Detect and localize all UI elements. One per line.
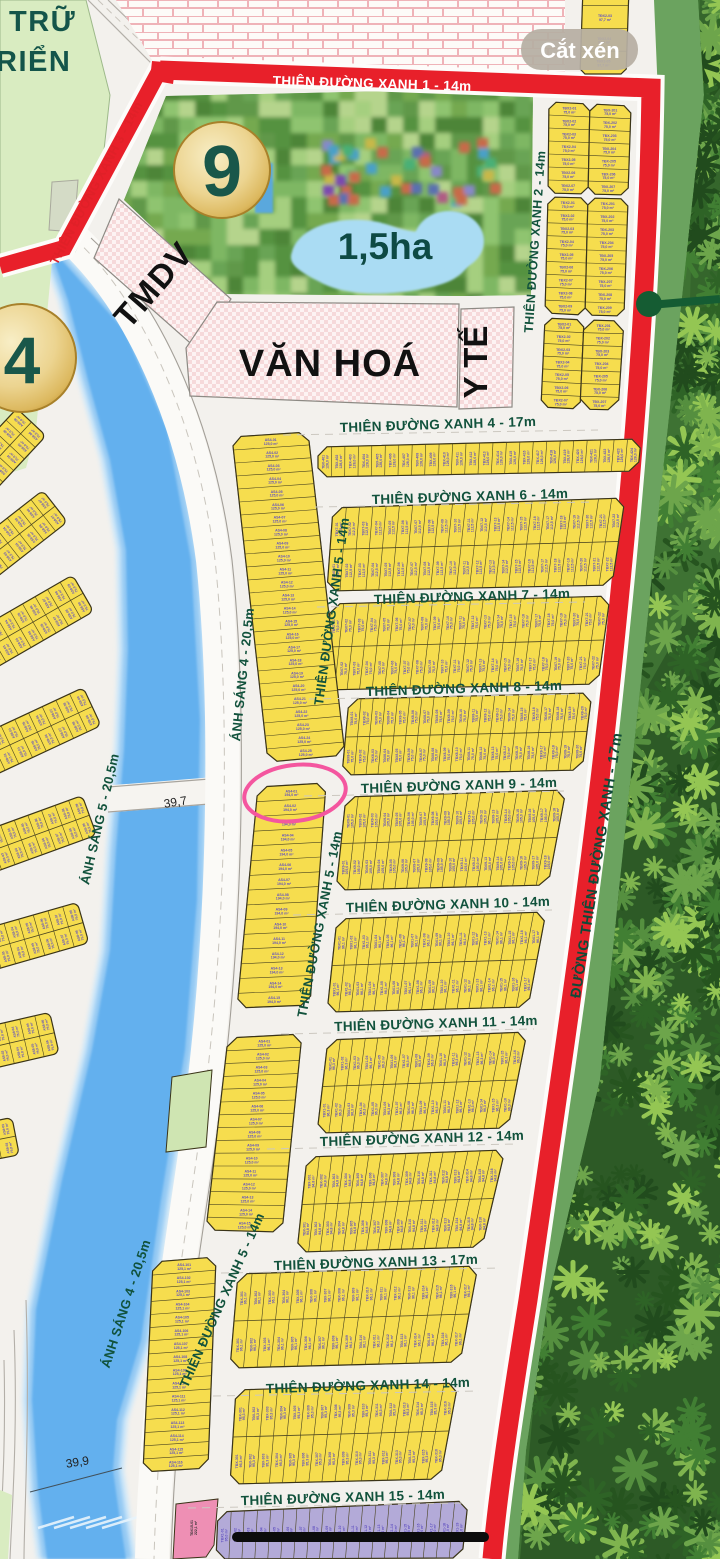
svg-text:TĐX9-17105,0 m²: TĐX9-17105,0 m²: [532, 855, 540, 870]
svg-text:AS4-06125,0 m²: AS4-06125,0 m²: [271, 503, 286, 511]
svg-text:TĐX-30995,3 m²: TĐX-30995,3 m²: [348, 1404, 356, 1418]
svg-text:TĐX-31695,3 m²: TĐX-31695,3 m²: [444, 1401, 452, 1415]
svg-text:TĐX-31094,8 m²: TĐX-31094,8 m²: [408, 1219, 416, 1233]
svg-text:TĐX7-2275,0 m²: TĐX7-2275,0 m²: [592, 656, 600, 670]
svg-text:TĐX7-09112,5 m²: TĐX7-09112,5 m²: [436, 561, 444, 576]
svg-text:TĐX1-1496,1 m²: TĐX1-1496,1 m²: [488, 978, 496, 992]
svg-text:TĐX-422128,0 m²: TĐX-422128,0 m²: [603, 448, 611, 463]
svg-text:TĐX-30796,1 m²: TĐX-30796,1 m²: [318, 1336, 326, 1350]
svg-text:AS4-06194,0 m²: AS4-06194,0 m²: [278, 863, 293, 871]
svg-text:TĐX-30996,1 m²: TĐX-30996,1 m²: [352, 1288, 360, 1302]
svg-text:AS4-115125,1 m²: AS4-115125,1 m²: [169, 1447, 184, 1455]
svg-text:TĐX-401128,0 m²: TĐX-401128,0 m²: [322, 454, 330, 469]
svg-text:AS4-113125,1 m²: AS4-113125,1 m²: [170, 1421, 185, 1429]
svg-text:TĐX1-0496,3 m²: TĐX1-0496,3 m²: [359, 1102, 367, 1116]
svg-text:TĐX7-1175,0 m²: TĐX7-1175,0 m²: [453, 659, 461, 673]
svg-text:TĐX7-0875,0 m²: TĐX7-0875,0 m²: [421, 617, 429, 631]
svg-text:AS4-22125,0 m²: AS4-22125,0 m²: [294, 710, 309, 718]
svg-text:AS4-04125,0 m²: AS4-04125,0 m²: [253, 1079, 268, 1087]
svg-text:TĐX1-1496,3 m²: TĐX1-1496,3 m²: [488, 1051, 496, 1065]
svg-text:AS4-10125,0 m²: AS4-10125,0 m²: [245, 1157, 260, 1165]
svg-text:AS4-111125,1 m²: AS4-111125,1 m²: [172, 1395, 187, 1403]
svg-text:TĐX-424128,0 m²: TĐX-424128,0 m²: [630, 447, 638, 462]
svg-text:TĐX-30594,8 m²: TĐX-30594,8 m²: [349, 1221, 357, 1235]
svg-text:TĐX-30394,8 m²: TĐX-30394,8 m²: [326, 1221, 334, 1235]
svg-text:TĐX1-1296,3 m²: TĐX1-1296,3 m²: [455, 1100, 463, 1114]
svg-text:TĐX1-0196,3 m²: TĐX1-0196,3 m²: [328, 1057, 336, 1071]
svg-text:TĐX8-0775,0 m²: TĐX8-0775,0 m²: [423, 710, 431, 724]
svg-text:TĐX7-0375,0 m²: TĐX7-0375,0 m²: [353, 662, 361, 676]
svg-text:TĐX1-0296,3 m²: TĐX1-0296,3 m²: [341, 1056, 349, 1070]
svg-text:TĐX2-0775,0 m²: TĐX2-0775,0 m²: [554, 399, 568, 407]
svg-text:TĐX1-1396,3 m²: TĐX1-1396,3 m²: [467, 1099, 475, 1113]
svg-text:TĐX-31796,1 m²: TĐX-31796,1 m²: [455, 1332, 463, 1346]
svg-text:TĐX-31595,3 m²: TĐX-31595,3 m²: [421, 1449, 429, 1463]
svg-text:TĐX-415128,0 m²: TĐX-415128,0 m²: [509, 450, 517, 465]
svg-text:TĐX1-0696,3 m²: TĐX1-0696,3 m²: [383, 1102, 391, 1116]
svg-text:TĐX-31096,1 m²: TĐX-31096,1 m²: [359, 1335, 367, 1349]
svg-text:TĐX7-1275,0 m²: TĐX7-1275,0 m²: [471, 615, 479, 629]
svg-text:TĐX-20775,0 m²: TĐX-20775,0 m²: [601, 185, 615, 193]
svg-text:TĐX-30495,3 m²: TĐX-30495,3 m²: [275, 1453, 283, 1467]
svg-text:TĐX-414128,0 m²: TĐX-414128,0 m²: [496, 450, 504, 465]
svg-text:TĐX-423128,0 m²: TĐX-423128,0 m²: [616, 448, 624, 463]
svg-text:TĐX1-0396,3 m²: TĐX1-0396,3 m²: [353, 1056, 361, 1070]
svg-text:TĐX7-0275,0 m²: TĐX7-0275,0 m²: [340, 662, 348, 676]
svg-text:TĐX1-0696,1 m²: TĐX1-0696,1 m²: [398, 934, 406, 948]
svg-text:TĐX-30996,1 m²: TĐX-30996,1 m²: [345, 1335, 353, 1349]
svg-text:AS4-104125,1 m²: AS4-104125,1 m²: [175, 1303, 190, 1311]
svg-text:TĐX-409128,0 m²: TĐX-409128,0 m²: [429, 452, 437, 467]
svg-text:TĐX1-1196,3 m²: TĐX1-1196,3 m²: [451, 1052, 459, 1066]
svg-text:TĐX-31096,1 m²: TĐX-31096,1 m²: [366, 1287, 374, 1301]
svg-text:TĐX7-05112,5 m²: TĐX7-05112,5 m²: [384, 562, 392, 577]
svg-text:TĐX-31195,3 m²: TĐX-31195,3 m²: [368, 1451, 376, 1465]
svg-text:TĐX9-18105,0 m²: TĐX9-18105,0 m²: [552, 807, 560, 822]
svg-text:TĐX7-08112,5 m²: TĐX7-08112,5 m²: [423, 561, 431, 576]
svg-text:TĐX7-10112,5 m²: TĐX7-10112,5 m²: [449, 560, 457, 575]
svg-text:TĐX-30695,3 m²: TĐX-30695,3 m²: [302, 1453, 310, 1467]
svg-text:TĐX9-11105,0 m²: TĐX9-11105,0 m²: [460, 857, 468, 872]
svg-text:TĐX7-04112,5 m²: TĐX7-04112,5 m²: [371, 562, 379, 577]
svg-text:TĐX8-0275,0 m²: TĐX8-0275,0 m²: [362, 711, 370, 725]
svg-text:AS4-12125,0 m²: AS4-12125,0 m²: [280, 581, 295, 589]
svg-text:TĐX8-1575,0 m²: TĐX8-1575,0 m²: [520, 708, 528, 722]
svg-text:TĐX2-0775,0 m²: TĐX2-0775,0 m²: [559, 279, 573, 287]
svg-text:TĐX-30195,3 m²: TĐX-30195,3 m²: [235, 1454, 243, 1468]
svg-text:TĐX-30396,1 m²: TĐX-30396,1 m²: [268, 1290, 276, 1304]
svg-text:TĐX8-0375,0 m²: TĐX8-0375,0 m²: [371, 749, 379, 763]
svg-text:TĐX7-1175,0 m²: TĐX7-1175,0 m²: [458, 616, 466, 630]
svg-text:TĐX-31796,1 m²: TĐX-31796,1 m²: [463, 1284, 471, 1298]
svg-text:TĐX1-1096,1 m²: TĐX1-1096,1 m²: [440, 980, 448, 994]
svg-text:TĐX7-0675,0 m²: TĐX7-0675,0 m²: [390, 661, 398, 675]
svg-text:TĐX-30694,8 m²: TĐX-30694,8 m²: [368, 1172, 376, 1186]
svg-text:TĐX-20775,0 m²: TĐX-20775,0 m²: [592, 400, 606, 408]
svg-text:AS4-107125,1 m²: AS4-107125,1 m²: [174, 1342, 189, 1350]
svg-text:TĐX-20575,0 m²: TĐX-20575,0 m²: [594, 375, 608, 383]
svg-text:TĐX2-0475,0 m²: TĐX2-0475,0 m²: [562, 145, 576, 153]
svg-text:TĐX8-1775,0 m²: TĐX8-1775,0 m²: [539, 745, 547, 759]
svg-text:TĐX-30494,8 m²: TĐX-30494,8 m²: [344, 1173, 352, 1187]
svg-text:TĐX-30796,1 m²: TĐX-30796,1 m²: [324, 1289, 332, 1303]
svg-text:TĐX-31595,3 m²: TĐX-31595,3 m²: [430, 1402, 438, 1416]
svg-text:VĂN HOÁ: VĂN HOÁ: [239, 341, 421, 385]
svg-text:TĐX-31095,3 m²: TĐX-31095,3 m²: [355, 1451, 363, 1465]
svg-text:TĐX1-0896,3 m²: TĐX1-0896,3 m²: [414, 1054, 422, 1068]
svg-text:AS4-08125,0 m²: AS4-08125,0 m²: [274, 529, 289, 537]
svg-text:TĐX1-0696,3 m²: TĐX1-0696,3 m²: [390, 1055, 398, 1069]
svg-text:TĐX2-0175,0 m²: TĐX2-0175,0 m²: [562, 107, 576, 115]
svg-text:TĐX-20475,0 m²: TĐX-20475,0 m²: [594, 362, 608, 370]
svg-text:TĐX1-0196,1 m²: TĐX1-0196,1 m²: [332, 982, 340, 996]
svg-text:TĐX-30794,8 m²: TĐX-30794,8 m²: [381, 1172, 389, 1186]
svg-text:TĐX9-08105,0 m²: TĐX9-08105,0 m²: [431, 811, 439, 826]
svg-text:TĐX-20575,0 m²: TĐX-20575,0 m²: [599, 254, 613, 262]
svg-text:9: 9: [202, 132, 242, 212]
svg-text:TĐX-20875,0 m²: TĐX-20875,0 m²: [598, 293, 612, 301]
svg-text:TĐX1-0696,1 m²: TĐX1-0696,1 m²: [392, 981, 400, 995]
svg-text:TĐX9-07105,0 m²: TĐX9-07105,0 m²: [419, 811, 427, 826]
svg-text:TĐX2-0875,0 m²: TĐX2-0875,0 m²: [558, 292, 572, 300]
svg-text:TĐX7-12112,5 m²: TĐX7-12112,5 m²: [475, 560, 483, 575]
svg-text:TĐX7-17112,5 m²: TĐX7-17112,5 m²: [546, 515, 554, 530]
svg-text:AS4-11194,0 m²: AS4-11194,0 m²: [272, 937, 287, 945]
svg-text:TĐX8-1275,0 m²: TĐX8-1275,0 m²: [484, 708, 492, 722]
svg-text:TĐX-31395,3 m²: TĐX-31395,3 m²: [402, 1402, 410, 1416]
svg-text:TĐX1-1796,1 m²: TĐX1-1796,1 m²: [532, 930, 540, 944]
svg-text:TĐX1-0896,1 m²: TĐX1-0896,1 m²: [423, 933, 431, 947]
svg-text:TĐX-412128,0 m²: TĐX-412128,0 m²: [469, 451, 477, 466]
svg-text:TĐX7-16112,5 m²: TĐX7-16112,5 m²: [527, 558, 535, 573]
svg-text:AS4-15125,0 m²: AS4-15125,0 m²: [284, 619, 299, 627]
svg-text:TĐX9-06105,0 m²: TĐX9-06105,0 m²: [407, 811, 415, 826]
svg-text:TĐX9-16105,0 m²: TĐX9-16105,0 m²: [528, 808, 536, 823]
svg-text:TĐX-30696,1 m²: TĐX-30696,1 m²: [304, 1336, 312, 1350]
svg-text:TĐX1-0596,1 m²: TĐX1-0596,1 m²: [386, 934, 394, 948]
svg-text:TĐX9-08105,0 m²: TĐX9-08105,0 m²: [425, 858, 433, 873]
svg-text:TĐX7-18112,5 m²: TĐX7-18112,5 m²: [554, 558, 562, 573]
svg-text:TĐX8-2075,0 m²: TĐX8-2075,0 m²: [575, 745, 583, 759]
svg-text:TĐX-30994,8 m²: TĐX-30994,8 m²: [396, 1219, 404, 1233]
svg-text:TĐX7-0575,0 m²: TĐX7-0575,0 m²: [383, 618, 391, 632]
svg-text:TĐX1-0396,3 m²: TĐX1-0396,3 m²: [347, 1103, 355, 1117]
svg-text:TĐX7-19112,5 m²: TĐX7-19112,5 m²: [573, 514, 581, 529]
svg-text:TĐX1-0296,1 m²: TĐX1-0296,1 m²: [350, 936, 358, 950]
svg-text:TĐX-31196,1 m²: TĐX-31196,1 m²: [373, 1334, 381, 1348]
svg-text:AS4-18125,0 m²: AS4-18125,0 m²: [288, 658, 303, 666]
svg-text:TĐX7-1575,0 m²: TĐX7-1575,0 m²: [509, 614, 517, 628]
svg-text:TĐX1-0596,3 m²: TĐX1-0596,3 m²: [378, 1055, 386, 1069]
svg-text:TĐX-30196,1 m²: TĐX-30196,1 m²: [236, 1338, 244, 1352]
svg-text:TĐX8-1375,0 m²: TĐX8-1375,0 m²: [491, 746, 499, 760]
svg-text:TĐX-30896,1 m²: TĐX-30896,1 m²: [331, 1336, 339, 1350]
svg-text:TĐX9-05105,0 m²: TĐX9-05105,0 m²: [395, 812, 403, 827]
svg-text:TĐX7-14112,5 m²: TĐX7-14112,5 m²: [501, 559, 509, 574]
svg-text:AS4-08125,0 m²: AS4-08125,0 m²: [247, 1131, 262, 1139]
svg-text:TĐX9-14105,0 m²: TĐX9-14105,0 m²: [496, 856, 504, 871]
svg-text:TĐX7-15112,5 m²: TĐX7-15112,5 m²: [520, 516, 528, 531]
svg-text:TĐX8-1975,0 m²: TĐX8-1975,0 m²: [568, 706, 576, 720]
svg-text:TĐX7-1775,0 m²: TĐX7-1775,0 m²: [529, 657, 537, 671]
svg-text:AS4-09194,0 m²: AS4-09194,0 m²: [274, 908, 289, 916]
svg-text:TĐX1-1296,1 m²: TĐX1-1296,1 m²: [464, 979, 472, 993]
svg-text:TĐX9-02105,0 m²: TĐX9-02105,0 m²: [359, 813, 367, 828]
svg-text:TĐX-31694,8 m²: TĐX-31694,8 m²: [479, 1217, 487, 1231]
svg-text:TĐX1-1396,3 m²: TĐX1-1396,3 m²: [476, 1051, 484, 1065]
svg-text:TĐX-30795,3 m²: TĐX-30795,3 m²: [320, 1405, 328, 1419]
svg-text:TĐX-30296,1 m²: TĐX-30296,1 m²: [254, 1291, 262, 1305]
svg-text:TĐX9-09105,0 m²: TĐX9-09105,0 m²: [436, 857, 444, 872]
svg-text:TĐX-416128,0 m²: TĐX-416128,0 m²: [523, 450, 531, 465]
svg-text:1,5ha: 1,5ha: [338, 226, 433, 267]
svg-text:TĐX-419128,0 m²: TĐX-419128,0 m²: [563, 449, 571, 464]
svg-text:TĐX8-0475,0 m²: TĐX8-0475,0 m²: [383, 749, 391, 763]
svg-text:TĐX-402128,0 m²: TĐX-402128,0 m²: [335, 454, 343, 469]
svg-text:AS4-01125,0 m²: AS4-01125,0 m²: [257, 1040, 272, 1048]
svg-text:TĐX7-20112,5 m²: TĐX7-20112,5 m²: [586, 514, 594, 529]
svg-text:TĐX9-02105,0 m²: TĐX9-02105,0 m²: [353, 859, 361, 874]
svg-text:TĐX9-13105,0 m²: TĐX9-13105,0 m²: [492, 809, 500, 824]
svg-text:TĐX-20275,0 m²: TĐX-20275,0 m²: [603, 121, 617, 129]
svg-text:TĐX7-0975,0 m²: TĐX7-0975,0 m²: [428, 660, 436, 674]
svg-text:TĐX-30394,8 m²: TĐX-30394,8 m²: [332, 1174, 340, 1188]
svg-text:TĐX9-09105,0 m²: TĐX9-09105,0 m²: [443, 810, 451, 825]
svg-text:TĐX8-1675,0 m²: TĐX8-1675,0 m²: [532, 707, 540, 721]
svg-text:Y TẾ: Y TẾ: [457, 326, 494, 399]
svg-text:TĐX-403128,0 m²: TĐX-403128,0 m²: [349, 453, 357, 468]
svg-text:TĐX8-1875,0 m²: TĐX8-1875,0 m²: [551, 745, 559, 759]
svg-text:AS4-01194,0 m²: AS4-01194,0 m²: [284, 789, 299, 797]
svg-text:TĐX8-1675,0 m²: TĐX8-1675,0 m²: [527, 746, 535, 760]
svg-text:TĐX7-19112,5 m²: TĐX7-19112,5 m²: [567, 557, 575, 572]
svg-text:TĐX1-0796,1 m²: TĐX1-0796,1 m²: [411, 934, 419, 948]
svg-text:AS4-105125,1 m²: AS4-105125,1 m²: [175, 1316, 190, 1324]
svg-text:TĐX-30194,8 m²: TĐX-30194,8 m²: [302, 1222, 310, 1236]
svg-text:TĐX7-11112,5 m²: TĐX7-11112,5 m²: [467, 518, 475, 533]
svg-text:TĐX-407128,0 m²: TĐX-407128,0 m²: [402, 452, 410, 467]
svg-text:TĐX9-06105,0 m²: TĐX9-06105,0 m²: [401, 858, 409, 873]
svg-text:TĐX1-1596,1 m²: TĐX1-1596,1 m²: [508, 931, 516, 945]
svg-text:AS4-20125,0 m²: AS4-20125,0 m²: [291, 684, 306, 692]
svg-text:TĐX9-15105,0 m²: TĐX9-15105,0 m²: [508, 855, 516, 870]
svg-text:TĐX2-0975,0 m²: TĐX2-0975,0 m²: [558, 305, 572, 313]
svg-text:TĐX-30295,3 m²: TĐX-30295,3 m²: [248, 1454, 256, 1468]
svg-text:TĐX1-0496,1 m²: TĐX1-0496,1 m²: [368, 982, 376, 996]
svg-text:TĐX7-06112,5 m²: TĐX7-06112,5 m²: [401, 520, 409, 535]
svg-text:TĐX7-03112,5 m²: TĐX7-03112,5 m²: [358, 563, 366, 578]
svg-text:TĐX7-21112,5 m²: TĐX7-21112,5 m²: [599, 513, 607, 528]
svg-text:TĐX1-0396,1 m²: TĐX1-0396,1 m²: [362, 935, 370, 949]
svg-text:TĐX-30395,3 m²: TĐX-30395,3 m²: [266, 1406, 274, 1420]
svg-text:TĐX-20475,0 m²: TĐX-20475,0 m²: [602, 147, 616, 155]
svg-text:TĐX1-0596,3 m²: TĐX1-0596,3 m²: [371, 1102, 379, 1116]
svg-text:TĐX-30694,8 m²: TĐX-30694,8 m²: [361, 1220, 369, 1234]
svg-text:TĐX2-0475,0 m²: TĐX2-0475,0 m²: [560, 240, 574, 248]
svg-text:TĐX7-0875,0 m²: TĐX7-0875,0 m²: [416, 660, 424, 674]
svg-text:TĐX9-17105,0 m²: TĐX9-17105,0 m²: [540, 807, 548, 822]
svg-text:TĐX1-0896,3 m²: TĐX1-0896,3 m²: [407, 1101, 415, 1115]
svg-text:TĐX-30496,1 m²: TĐX-30496,1 m²: [282, 1290, 290, 1304]
svg-text:TĐX7-11112,5 m²: TĐX7-11112,5 m²: [462, 560, 470, 575]
svg-text:TĐX8-0275,0 m²: TĐX8-0275,0 m²: [359, 749, 367, 763]
svg-text:TĐX7-08112,5 m²: TĐX7-08112,5 m²: [427, 519, 435, 534]
svg-text:TĐX1-1296,1 m²: TĐX1-1296,1 m²: [471, 932, 479, 946]
svg-text:TĐX-31295,3 m²: TĐX-31295,3 m²: [381, 1450, 389, 1464]
svg-text:AS4-07125,0 m²: AS4-07125,0 m²: [249, 1118, 264, 1126]
svg-text:TĐX2-0675,0 m²: TĐX2-0675,0 m²: [559, 266, 573, 274]
svg-text:TĐX8-0975,0 m²: TĐX8-0975,0 m²: [447, 709, 455, 723]
svg-text:TĐX2-0675,0 m²: TĐX2-0675,0 m²: [554, 386, 568, 394]
svg-text:TĐX-31394,8 m²: TĐX-31394,8 m²: [443, 1218, 451, 1232]
svg-text:AS4-11125,0 m²: AS4-11125,0 m²: [278, 568, 293, 576]
svg-text:AS4-103125,1 m²: AS4-103125,1 m²: [176, 1289, 191, 1297]
svg-text:TĐX-30794,8 m²: TĐX-30794,8 m²: [373, 1220, 381, 1234]
svg-text:TĐX9-13105,0 m²: TĐX9-13105,0 m²: [484, 856, 492, 871]
svg-text:TĐX-20275,0 m²: TĐX-20275,0 m²: [600, 215, 614, 223]
svg-text:TĐX1-0996,3 m²: TĐX1-0996,3 m²: [427, 1053, 435, 1067]
svg-text:TĐX7-0275,0 m²: TĐX7-0275,0 m²: [345, 619, 353, 633]
svg-text:TĐX8-0875,0 m²: TĐX8-0875,0 m²: [431, 748, 439, 762]
svg-text:AS4-13194,0 m²: AS4-13194,0 m²: [270, 967, 285, 975]
svg-text:TĐX7-0675,0 m²: TĐX7-0675,0 m²: [395, 617, 403, 631]
svg-text:TĐX7-0775,0 m²: TĐX7-0775,0 m²: [408, 617, 416, 631]
svg-text:TĐX9-10105,0 m²: TĐX9-10105,0 m²: [455, 810, 463, 825]
svg-text:RIỂN: RIỂN: [0, 44, 71, 78]
svg-text:TĐX-30496,1 m²: TĐX-30496,1 m²: [277, 1337, 285, 1351]
svg-text:TĐX-31396,1 m²: TĐX-31396,1 m²: [400, 1334, 408, 1348]
svg-text:Cắt xén: Cắt xén: [540, 38, 619, 63]
svg-text:TĐX1-1596,3 m²: TĐX1-1596,3 m²: [492, 1098, 500, 1112]
svg-text:TĐX-30596,1 m²: TĐX-30596,1 m²: [290, 1337, 298, 1351]
svg-text:AS4-10125,0 m²: AS4-10125,0 m²: [277, 555, 292, 563]
svg-text:AS4-01125,0 m²: AS4-01125,0 m²: [264, 438, 279, 446]
svg-text:TĐX7-06112,5 m²: TĐX7-06112,5 m²: [397, 562, 405, 577]
svg-text:TĐX1-0396,1 m²: TĐX1-0396,1 m²: [356, 982, 364, 996]
svg-text:AS4-112125,1 m²: AS4-112125,1 m²: [171, 1408, 186, 1416]
svg-text:TĐX9-03105,0 m²: TĐX9-03105,0 m²: [365, 859, 373, 874]
svg-text:TĐX1-0996,1 m²: TĐX1-0996,1 m²: [428, 980, 436, 994]
svg-text:TĐX7-1975,0 m²: TĐX7-1975,0 m²: [560, 613, 568, 627]
svg-text:TĐX2-0275,0 m²: TĐX2-0275,0 m²: [560, 214, 574, 222]
svg-text:TĐX1-0996,3 m²: TĐX1-0996,3 m²: [419, 1101, 427, 1115]
svg-text:TĐX8-1075,0 m²: TĐX8-1075,0 m²: [459, 709, 467, 723]
svg-text:TĐX-31296,1 m²: TĐX-31296,1 m²: [386, 1334, 394, 1348]
svg-text:TĐX2-0475,0 m²: TĐX2-0475,0 m²: [555, 361, 569, 369]
svg-text:TĐX2-0375,0 m²: TĐX2-0375,0 m²: [562, 132, 576, 140]
svg-text:TĐX-417128,0 m²: TĐX-417128,0 m²: [536, 449, 544, 464]
svg-text:TĐX9-18105,0 m²: TĐX9-18105,0 m²: [543, 855, 551, 870]
svg-text:TĐX9-07105,0 m²: TĐX9-07105,0 m²: [413, 858, 421, 873]
svg-text:TĐX7-02112,5 m²: TĐX7-02112,5 m²: [345, 563, 353, 578]
svg-text:TĐX8-0475,0 m²: TĐX8-0475,0 m²: [387, 711, 395, 725]
svg-text:TĐX1-1496,1 m²: TĐX1-1496,1 m²: [496, 931, 504, 945]
svg-text:TĐX7-0575,0 m²: TĐX7-0575,0 m²: [378, 661, 386, 675]
svg-text:TRỮ: TRỮ: [9, 4, 76, 38]
svg-text:TĐX-30895,3 m²: TĐX-30895,3 m²: [328, 1452, 336, 1466]
svg-text:TĐX1-1396,1 m²: TĐX1-1396,1 m²: [484, 931, 492, 945]
svg-text:TĐX-31495,3 m²: TĐX-31495,3 m²: [408, 1450, 416, 1464]
svg-text:TĐX7-1775,0 m²: TĐX7-1775,0 m²: [534, 614, 542, 628]
svg-text:TĐX-420128,0 m²: TĐX-420128,0 m²: [576, 448, 584, 463]
svg-text:TĐX7-1675,0 m²: TĐX7-1675,0 m²: [516, 658, 524, 672]
svg-text:TĐX-405128,0 m²: TĐX-405128,0 m²: [375, 453, 383, 468]
svg-text:TĐX-31194,8 m²: TĐX-31194,8 m²: [429, 1170, 437, 1184]
svg-text:TĐX-413128,0 m²: TĐX-413128,0 m²: [482, 451, 490, 466]
svg-text:TĐX1-1296,3 m²: TĐX1-1296,3 m²: [464, 1052, 472, 1066]
svg-text:TĐX2-0575,0 m²: TĐX2-0575,0 m²: [561, 158, 575, 166]
svg-text:AS4-07125,0 m²: AS4-07125,0 m²: [272, 516, 287, 524]
svg-text:AS4-02125,0 m²: AS4-02125,0 m²: [265, 451, 280, 459]
svg-text:TĐX-30294,8 m²: TĐX-30294,8 m²: [320, 1174, 328, 1188]
svg-text:TĐX9-10105,0 m²: TĐX9-10105,0 m²: [448, 857, 456, 872]
svg-text:TĐX-30894,8 m²: TĐX-30894,8 m²: [385, 1220, 393, 1234]
svg-text:TĐX-20475,0 m²: TĐX-20475,0 m²: [600, 241, 614, 249]
svg-text:TĐX8-0175,0 m²: TĐX8-0175,0 m²: [350, 712, 358, 726]
svg-text:TĐX8-1075,0 m²: TĐX8-1075,0 m²: [455, 747, 463, 761]
svg-text:TĐX1-1396,1 m²: TĐX1-1396,1 m²: [476, 979, 484, 993]
svg-text:AS4-14125,0 m²: AS4-14125,0 m²: [283, 607, 298, 615]
svg-text:TĐX-404128,0 m²: TĐX-404128,0 m²: [362, 453, 370, 468]
svg-text:AS4-13125,0 m²: AS4-13125,0 m²: [281, 594, 296, 602]
svg-text:TĐX9-05105,0 m²: TĐX9-05105,0 m²: [389, 858, 397, 873]
svg-text:TĐX-31294,8 m²: TĐX-31294,8 m²: [441, 1170, 449, 1184]
svg-text:TĐX7-13112,5 m²: TĐX7-13112,5 m²: [488, 559, 496, 574]
svg-text:TĐX7-1575,0 m²: TĐX7-1575,0 m²: [504, 658, 512, 672]
svg-text:TĐX7-18112,5 m²: TĐX7-18112,5 m²: [559, 515, 567, 530]
svg-text:TĐX-30195,3 m²: TĐX-30195,3 m²: [238, 1407, 246, 1421]
svg-text:TĐX7-03112,5 m²: TĐX7-03112,5 m²: [361, 521, 369, 536]
svg-text:TĐX-31596,1 m²: TĐX-31596,1 m²: [427, 1333, 435, 1347]
svg-text:TĐX1-0596,1 m²: TĐX1-0596,1 m²: [380, 981, 388, 995]
svg-text:AS4-102125,1 m²: AS4-102125,1 m²: [177, 1276, 192, 1284]
svg-text:AS4-19125,0 m²: AS4-19125,0 m²: [290, 671, 305, 679]
svg-text:AS4-09125,0 m²: AS4-09125,0 m²: [246, 1144, 261, 1152]
svg-text:TĐX7-15112,5 m²: TĐX7-15112,5 m²: [514, 559, 522, 574]
svg-text:TĐX1-0496,1 m²: TĐX1-0496,1 m²: [374, 935, 382, 949]
svg-text:TĐX7-20112,5 m²: TĐX7-20112,5 m²: [580, 557, 588, 572]
svg-text:TĐX8-1475,0 m²: TĐX8-1475,0 m²: [508, 708, 516, 722]
svg-text:TĐX7-1075,0 m²: TĐX7-1075,0 m²: [446, 616, 454, 630]
svg-text:TĐX1-1696,1 m²: TĐX1-1696,1 m²: [511, 978, 519, 992]
svg-text:TĐX8-1575,0 m²: TĐX8-1575,0 m²: [515, 746, 523, 760]
svg-text:TĐX-30294,8 m²: TĐX-30294,8 m²: [314, 1222, 322, 1236]
svg-text:TĐX9-15105,0 m²: TĐX9-15105,0 m²: [516, 808, 524, 823]
svg-text:TĐX8-1175,0 m²: TĐX8-1175,0 m²: [467, 747, 475, 761]
svg-text:TĐX7-1475,0 m²: TĐX7-1475,0 m²: [491, 658, 499, 672]
svg-text:TĐX1-1196,1 m²: TĐX1-1196,1 m²: [459, 932, 467, 946]
svg-text:TĐX7-1675,0 m²: TĐX7-1675,0 m²: [522, 614, 530, 628]
svg-text:AS4-12194,0 m²: AS4-12194,0 m²: [271, 952, 286, 960]
svg-text:TĐX-30894,8 m²: TĐX-30894,8 m²: [393, 1172, 401, 1186]
svg-text:TĐX7-0375,0 m²: TĐX7-0375,0 m²: [357, 618, 365, 632]
svg-text:AS4-10194,0 m²: AS4-10194,0 m²: [273, 922, 288, 930]
svg-text:TĐX7-07112,5 m²: TĐX7-07112,5 m²: [414, 519, 422, 534]
svg-text:AS4-23125,0 m²: AS4-23125,0 m²: [296, 723, 311, 731]
svg-text:TĐX1-0796,3 m²: TĐX1-0796,3 m²: [402, 1054, 410, 1068]
svg-text:TĐX1-1696,1 m²: TĐX1-1696,1 m²: [520, 930, 528, 944]
svg-text:TĐX8-2075,0 m²: TĐX8-2075,0 m²: [580, 706, 588, 720]
svg-text:TĐX7-21112,5 m²: TĐX7-21112,5 m²: [593, 557, 601, 572]
svg-text:TĐX9-03105,0 m²: TĐX9-03105,0 m²: [371, 812, 379, 827]
svg-text:TĐX8-0975,0 m²: TĐX8-0975,0 m²: [443, 747, 451, 761]
svg-text:TĐX1-0296,1 m²: TĐX1-0296,1 m²: [344, 982, 352, 996]
svg-text:TĐX7-17112,5 m²: TĐX7-17112,5 m²: [541, 558, 549, 573]
svg-text:TĐX8-0875,0 m²: TĐX8-0875,0 m²: [435, 710, 443, 724]
svg-text:TĐX8-1775,0 m²: TĐX8-1775,0 m²: [544, 707, 552, 721]
svg-text:TĐX1-1796,1 m²: TĐX1-1796,1 m²: [523, 977, 531, 991]
svg-text:TĐX7-09112,5 m²: TĐX7-09112,5 m²: [441, 518, 449, 533]
